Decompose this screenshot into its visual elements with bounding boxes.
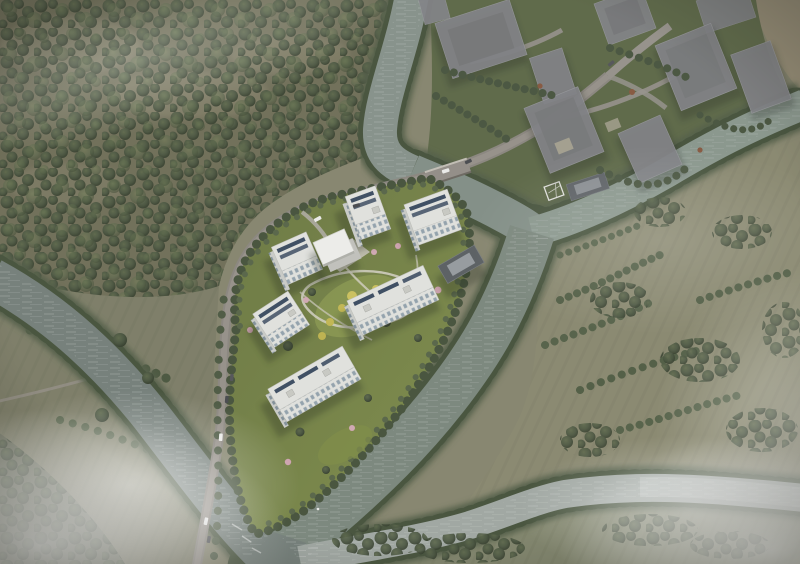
rendering-canvas <box>0 0 800 564</box>
vignette <box>0 0 800 564</box>
aerial-rendering-scene <box>0 0 800 564</box>
atmosphere-mist <box>0 0 800 564</box>
